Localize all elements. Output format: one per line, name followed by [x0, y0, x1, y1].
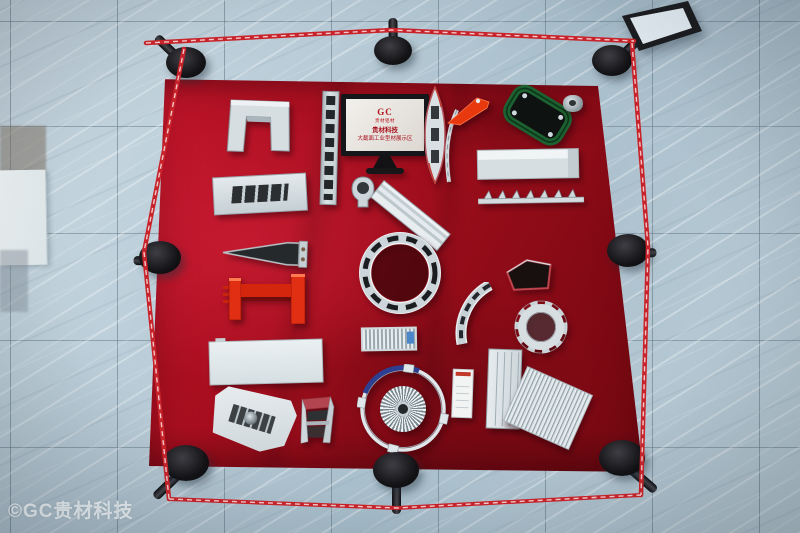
sign-title-line2: 大截面工业型材展示区 — [357, 136, 412, 143]
stanchion-base — [139, 241, 181, 274]
ribbed-heatsink-profile — [361, 327, 417, 352]
heatsink-hub-hole — [396, 402, 410, 416]
display-sign: GC 贵材铝材 贵材科技 大截面工业型材展示区 — [341, 94, 429, 156]
exhibition-photo: GC 贵材铝材 贵材科技 大截面工业型材展示区 — [0, 0, 800, 533]
corner-sign-holder — [614, 0, 704, 59]
stanchion-base — [166, 47, 206, 78]
slotted-flat-bar-profile — [212, 173, 308, 216]
stanchion-base — [607, 234, 649, 267]
slotted-ring-profile — [357, 230, 443, 321]
pentagon-tube-profile — [503, 256, 557, 304]
spec-card — [451, 369, 474, 419]
gray-floor-strip — [0, 250, 28, 312]
tapered-wedge-profile — [220, 236, 309, 274]
sign-stand-base — [366, 168, 404, 174]
photo-watermark: ©GC贵材科技 — [8, 496, 134, 523]
round-connector-profile — [563, 95, 583, 112]
turbine-ring-heatsink — [357, 364, 449, 454]
sign-face: GC 贵材铝材 贵材科技 大截面工业型材展示区 — [346, 99, 424, 151]
long-white-panel-profile — [208, 339, 323, 386]
red-i-beam-profile — [223, 274, 309, 329]
flat-bar-slots — [231, 183, 288, 203]
toothed-rail-profile — [478, 185, 584, 210]
orange-bracket-profile — [446, 92, 494, 133]
sign-logo: GC — [377, 108, 393, 117]
slotted-arc-profile — [454, 282, 498, 353]
slotted-rail-profile — [320, 91, 340, 205]
rectangular-box-profile — [477, 148, 580, 180]
sign-title-line1: 贵材科技 — [372, 127, 398, 135]
stanchion-base — [374, 36, 412, 65]
truss-profile — [294, 393, 337, 452]
stanchion-base — [373, 452, 419, 488]
u-channel-profile — [225, 97, 293, 164]
sign-logo-subtext: 贵材铝材 — [375, 118, 395, 123]
stanchion-base — [599, 440, 645, 476]
green-frame-profile — [500, 82, 574, 155]
stanchion-base — [163, 445, 209, 481]
rail-slots — [324, 96, 336, 200]
